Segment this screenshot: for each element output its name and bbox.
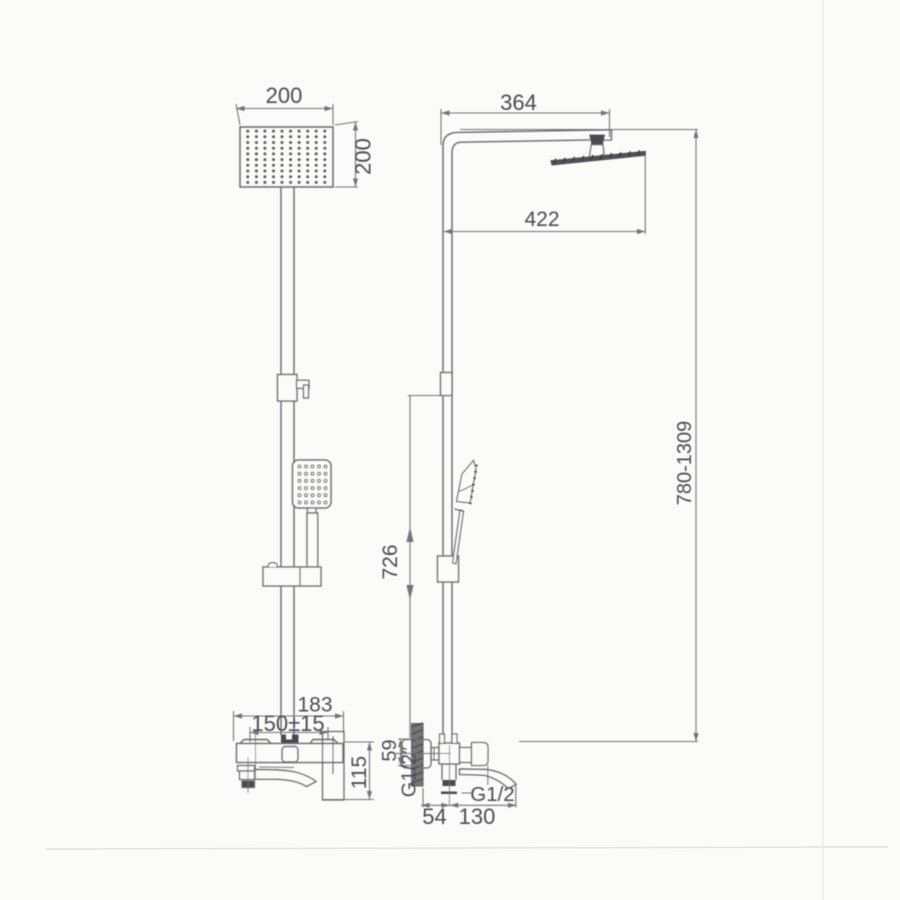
- svg-text:G1/2: G1/2: [470, 783, 514, 806]
- svg-text:115: 115: [348, 756, 371, 789]
- svg-text:780-1309: 780-1309: [674, 421, 696, 506]
- svg-text:200: 200: [266, 83, 303, 108]
- svg-text:364: 364: [500, 90, 537, 115]
- svg-text:130: 130: [459, 804, 496, 829]
- svg-text:54: 54: [422, 804, 446, 829]
- svg-text:150±15: 150±15: [251, 711, 324, 736]
- svg-text:200: 200: [351, 138, 376, 175]
- svg-text:422: 422: [524, 208, 559, 231]
- svg-text:G1/2″: G1/2″: [399, 747, 421, 797]
- svg-text:726: 726: [379, 544, 402, 579]
